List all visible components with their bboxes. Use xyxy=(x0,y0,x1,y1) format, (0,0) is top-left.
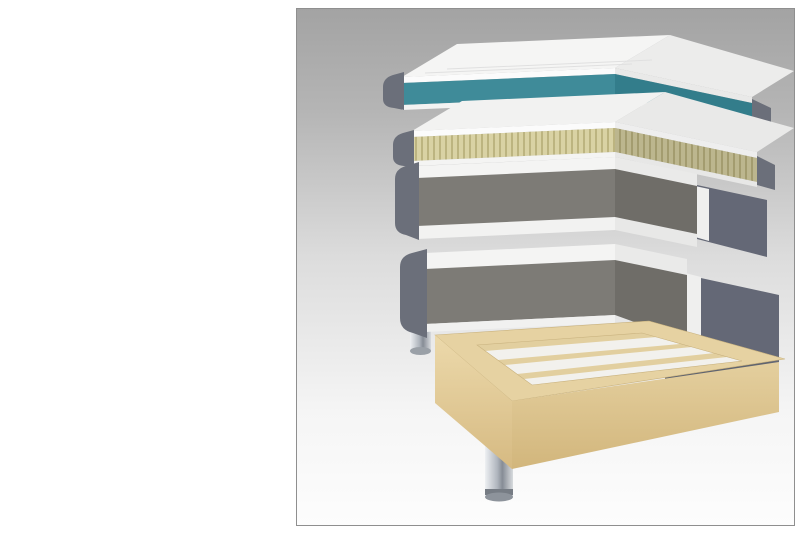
diagram-panel xyxy=(296,8,795,526)
bed-cutaway-diagram xyxy=(297,9,794,524)
info-panel xyxy=(0,0,296,533)
